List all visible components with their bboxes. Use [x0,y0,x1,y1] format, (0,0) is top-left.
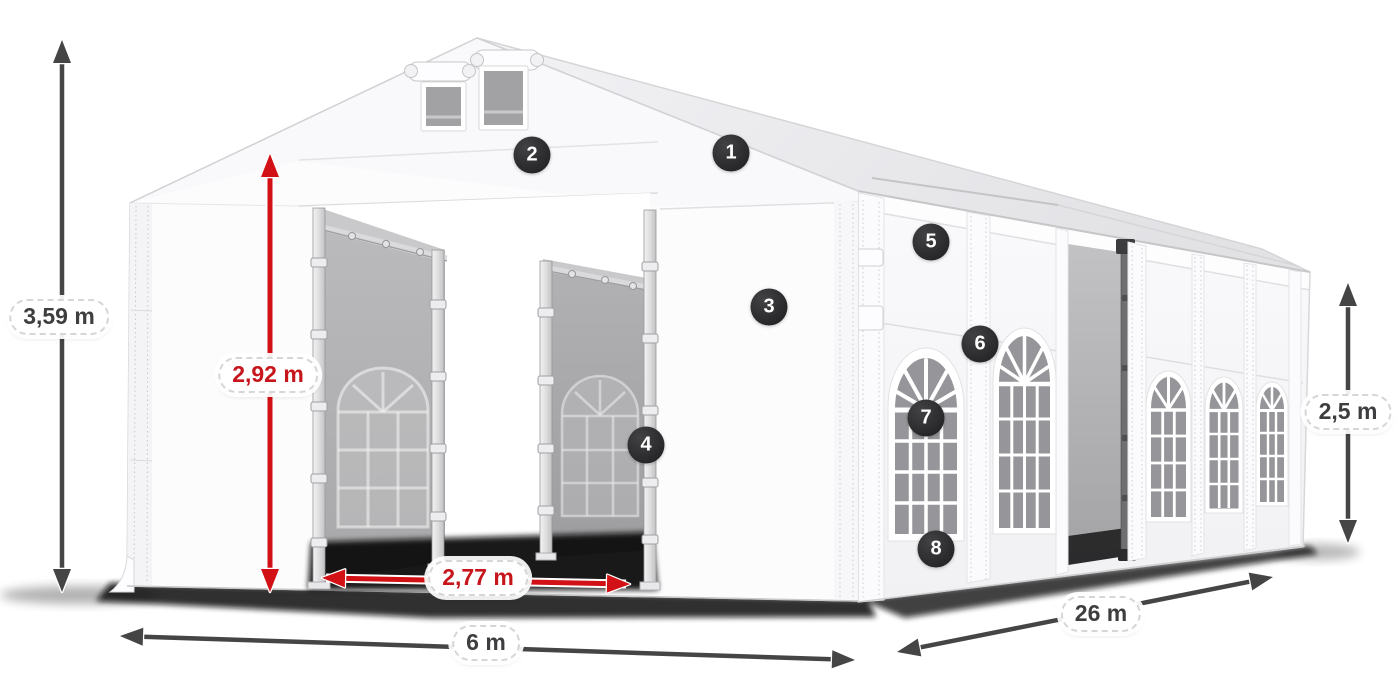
arched-window [888,348,964,541]
front-right-corner-strap [834,201,858,601]
side-door-opening [1068,239,1136,565]
arched-window [1146,371,1191,522]
callout-badge-2: 2 [514,137,551,174]
callout-badge-8: 8 [918,531,955,568]
callout-badge-6: 6 [962,326,999,363]
callout-badge-5: 5 [913,224,950,261]
interior-window-print [338,368,428,527]
dim-label-side-height: 2,5 m [1305,394,1392,430]
dim-label-total-height: 3,59 m [9,299,109,335]
callout-badge-3: 3 [751,289,788,326]
callout-badge-7: 7 [908,400,945,437]
dim-label-door-height: 2,92 m [218,357,318,393]
callout-badge-1: 1 [713,135,750,172]
dim-label-tent-length: 26 m [1061,596,1141,632]
callout-badge-4: 4 [628,427,665,464]
arched-window [1205,377,1243,513]
dim-label-tent-width: 6 m [452,625,520,661]
dim-label-door-width: 2,77 m [428,560,528,596]
tent-dimension-diagram: 1 2 3 4 5 6 7 8 3,59 m 2,92 m 2,77 m 6 m… [0,0,1400,700]
tent-illustration [0,0,1400,700]
front-opening-interior [308,193,660,590]
arched-window [993,328,1056,534]
arched-window [1256,382,1288,506]
